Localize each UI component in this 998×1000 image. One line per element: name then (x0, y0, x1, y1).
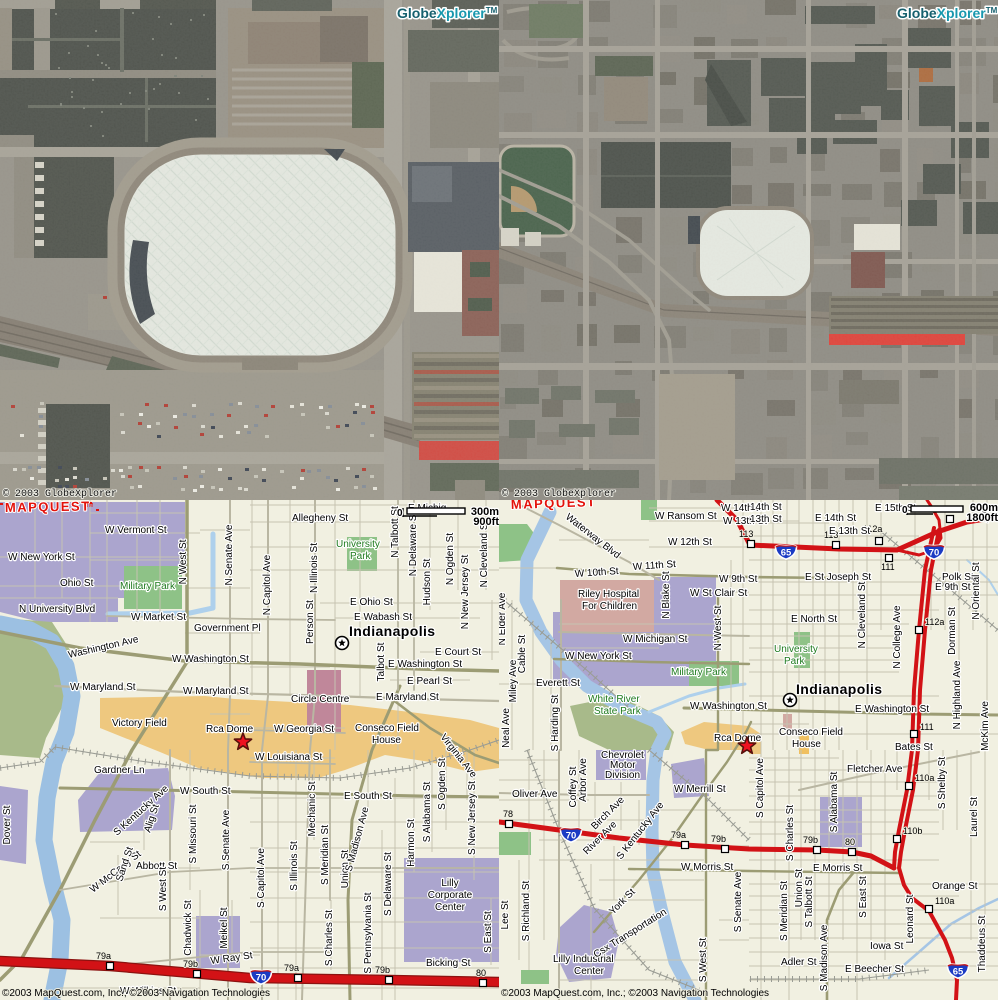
svg-text:110b: 110b (903, 826, 922, 836)
svg-text:S Alabama St: S Alabama St (422, 781, 433, 842)
svg-text:80: 80 (476, 968, 486, 978)
svg-text:13th St: 13th St (750, 514, 782, 525)
svg-text:79b: 79b (375, 965, 390, 975)
svg-text:S Meridian St: S Meridian St (779, 881, 790, 941)
svg-text:GlobeXplorerTM: GlobeXplorerTM (897, 5, 998, 21)
svg-text:Orange St: Orange St (932, 881, 978, 892)
svg-text:S Illinois St: S Illinois St (289, 841, 300, 891)
svg-text:W Louisiana St: W Louisiana St (255, 752, 322, 763)
svg-text:S Charles St: S Charles St (785, 805, 796, 861)
svg-text:Coffey St: Coffey St (568, 766, 579, 807)
svg-text:N West St: N West St (178, 539, 189, 584)
svg-text:Lee St: Lee St (500, 900, 511, 929)
svg-text:Mechanic St: Mechanic St (307, 781, 318, 836)
svg-text:79a: 79a (284, 963, 299, 973)
svg-text:GlobeXplorerTM: GlobeXplorerTM (397, 5, 498, 21)
svg-text:E 15th St: E 15th St (875, 503, 916, 514)
svg-text:70: 70 (566, 831, 577, 842)
svg-text:S Capitol Ave: S Capitol Ave (755, 758, 766, 818)
svg-text:S Talbott St: S Talbott St (804, 876, 815, 927)
svg-text:McKim Ave: McKim Ave (980, 701, 991, 751)
svg-text:70: 70 (256, 973, 267, 984)
svg-text:Victory Field: Victory Field (112, 718, 167, 729)
svg-text:S Senate Ave: S Senate Ave (733, 871, 744, 932)
svg-text:79b: 79b (711, 834, 726, 844)
svg-text:Everett St: Everett St (536, 678, 580, 689)
svg-text:Abbott St: Abbott St (136, 861, 177, 872)
svg-text:S Capitol Ave: S Capitol Ave (256, 848, 267, 908)
svg-text:© 2003 GlobeXplorer: © 2003 GlobeXplorer (3, 488, 117, 500)
svg-text:Ohio St: Ohio St (60, 578, 94, 589)
svg-text:S Richland St: S Richland St (521, 880, 532, 941)
svg-text:For Children: For Children (582, 601, 637, 612)
svg-text:900ft: 900ft (473, 516, 499, 528)
svg-text:N New Jersey St: N New Jersey St (460, 555, 471, 630)
svg-text:W Michigan St: W Michigan St (623, 634, 688, 645)
svg-text:79a: 79a (96, 951, 111, 961)
svg-text:Lilly: Lilly (441, 878, 458, 889)
svg-text:S Pennsylvania St: S Pennsylvania St (363, 892, 374, 973)
svg-text:Conseco Field: Conseco Field (779, 727, 843, 738)
svg-text:©2003 MapQuest.com, Inc.; ©200: ©2003 MapQuest.com, Inc.; ©2003 Navigati… (501, 988, 769, 999)
svg-text:S Delaware St: S Delaware St (383, 852, 394, 916)
svg-text:W South St: W South St (180, 786, 231, 797)
svg-text:S Charles St: S Charles St (324, 910, 335, 966)
svg-text:W 12th St: W 12th St (668, 537, 712, 548)
svg-text:W Merrill St: W Merrill St (674, 784, 726, 795)
svg-text:S Harding St: S Harding St (550, 694, 561, 751)
svg-text:E 9th St: E 9th St (935, 582, 971, 593)
svg-text:Government Pl: Government Pl (194, 623, 261, 634)
svg-text:112a: 112a (925, 617, 944, 627)
svg-text:Dorman St: Dorman St (947, 607, 958, 655)
svg-text:79a: 79a (671, 830, 686, 840)
svg-text:Park: Park (350, 551, 372, 562)
svg-text:N University Blvd: N University Blvd (19, 604, 95, 615)
svg-text:Arbor Ave: Arbor Ave (578, 758, 589, 802)
svg-text:Allegheny St: Allegheny St (292, 513, 348, 524)
svg-text:0: 0 (397, 508, 403, 519)
svg-text:Division: Division (605, 770, 640, 781)
svg-text:Meikel St: Meikel St (219, 907, 230, 948)
svg-text:110a: 110a (935, 896, 954, 906)
svg-text:S Alabama St: S Alabama St (829, 771, 840, 832)
svg-text:79b: 79b (803, 835, 818, 845)
svg-text:N Elder Ave: N Elder Ave (499, 592, 508, 645)
svg-text:Chadwick St: Chadwick St (183, 900, 194, 956)
svg-text:Indianapolis: Indianapolis (349, 623, 435, 639)
svg-text:N Cleveland St: N Cleveland St (479, 520, 490, 587)
svg-text:Adler St: Adler St (781, 957, 817, 968)
svg-text:Fletcher Ave: Fletcher Ave (847, 764, 903, 775)
svg-text:TM: TM (86, 503, 93, 509)
svg-text:W St Clair St: W St Clair St (690, 588, 747, 599)
svg-text:N West St: N West St (713, 605, 724, 650)
svg-text:Circle Centre: Circle Centre (291, 694, 350, 705)
svg-text:E Morris St: E Morris St (813, 863, 863, 874)
svg-text:Rca Dome: Rca Dome (206, 724, 254, 735)
svg-text:Person St: Person St (305, 600, 316, 644)
svg-text:N Capitol Ave: N Capitol Ave (262, 554, 273, 615)
svg-text:N Cleveland St: N Cleveland St (857, 581, 868, 648)
svg-text:Park: Park (784, 656, 806, 667)
svg-text:N Senate Ave: N Senate Ave (224, 524, 235, 585)
svg-text:W Maryland St: W Maryland St (183, 686, 249, 697)
svg-text:W Market St: W Market St (131, 612, 186, 623)
svg-text:S Meridian St: S Meridian St (320, 825, 331, 885)
svg-text:E North St: E North St (791, 614, 837, 625)
svg-text:N Highland Ave: N Highland Ave (952, 660, 963, 729)
svg-text:University: University (336, 539, 380, 550)
svg-text:Leonard St: Leonard St (905, 894, 916, 943)
svg-text:White River: White River (588, 694, 640, 705)
svg-text:Gardner Ln: Gardner Ln (94, 765, 145, 776)
svg-text:E Wabash St: E Wabash St (354, 612, 412, 623)
svg-text:Laurel St: Laurel St (969, 797, 980, 837)
svg-text:Indianapolis: Indianapolis (796, 681, 882, 697)
svg-text:65: 65 (953, 967, 964, 978)
svg-text:Center: Center (435, 902, 466, 913)
svg-text:MAPQUEST: MAPQUEST (5, 500, 91, 515)
svg-text:Harmon St: Harmon St (406, 819, 417, 867)
svg-text:Oliver Ave: Oliver Ave (512, 789, 558, 800)
svg-text:80: 80 (845, 837, 855, 847)
svg-text:N College Ave: N College Ave (892, 605, 903, 669)
svg-text:Neal Ave: Neal Ave (501, 708, 512, 748)
svg-text:Iowa St: Iowa St (870, 941, 904, 952)
svg-text:Dover St: Dover St (2, 805, 13, 844)
svg-text:E Washington St: E Washington St (388, 659, 462, 670)
svg-text:W New York St: W New York St (8, 552, 75, 563)
svg-text:14th St: 14th St (750, 502, 782, 513)
svg-text:Military Park: Military Park (671, 667, 727, 678)
svg-text:N Ogden St: N Ogden St (445, 533, 456, 585)
svg-text:S West St: S West St (158, 867, 169, 911)
svg-text:S Shelby St: S Shelby St (937, 757, 948, 809)
svg-text:110a: 110a (915, 773, 934, 783)
svg-text:78: 78 (503, 809, 513, 819)
svg-text:Hudson St: Hudson St (422, 558, 433, 605)
svg-text:W Georgia St: W Georgia St (274, 724, 334, 735)
svg-text:E Ohio St: E Ohio St (350, 597, 393, 608)
svg-text:S New Jersey St: S New Jersey St (467, 781, 478, 855)
svg-text:N Illinois St: N Illinois St (309, 543, 320, 593)
svg-text:W Washington St: W Washington St (172, 654, 249, 665)
svg-text:E Pearl St: E Pearl St (407, 676, 452, 687)
svg-text:E Beecher St: E Beecher St (845, 964, 904, 975)
svg-text:E Maryland St: E Maryland St (376, 692, 439, 703)
svg-text:113: 113 (739, 529, 753, 539)
svg-text:0: 0 (902, 505, 908, 516)
svg-text:Military Park: Military Park (120, 581, 176, 592)
svg-text:S East St: S East St (483, 911, 494, 953)
svg-text:Thaddeus St: Thaddeus St (977, 915, 988, 972)
svg-text:N Delaware St: N Delaware St (408, 512, 419, 577)
svg-text:E Court St: E Court St (435, 647, 481, 658)
svg-text:Corporate: Corporate (428, 890, 473, 901)
svg-text:W Ransom St: W Ransom St (655, 511, 717, 522)
svg-text:1800ft: 1800ft (966, 512, 998, 524)
svg-text:House: House (792, 739, 821, 750)
svg-text:111: 111 (920, 722, 934, 732)
svg-text:W Morris St: W Morris St (681, 862, 733, 873)
svg-text:E 14th St: E 14th St (815, 513, 856, 524)
svg-text:© 2003 GlobeXplorer: © 2003 GlobeXplorer (502, 488, 616, 500)
svg-text:W New York St: W New York St (565, 651, 632, 662)
svg-text:70: 70 (929, 548, 940, 559)
svg-text:©2003 MapQuest.com, Inc.; ©200: ©2003 MapQuest.com, Inc.; ©2003 Navigati… (2, 988, 270, 999)
svg-text:Riley Hospital: Riley Hospital (578, 589, 639, 600)
svg-text:Center: Center (574, 966, 605, 977)
svg-text:House: House (372, 735, 401, 746)
svg-text:65: 65 (781, 548, 792, 559)
svg-text:E Washington St: E Washington St (855, 704, 929, 715)
svg-text:W Maryland St: W Maryland St (70, 682, 136, 693)
svg-text:S Madison Ave: S Madison Ave (819, 924, 830, 991)
svg-text:Talbot St: Talbot St (376, 642, 387, 681)
svg-text:S Missouri St: S Missouri St (188, 804, 199, 863)
svg-text:S West St: S West St (698, 938, 709, 982)
svg-text:W Washington St: W Washington St (690, 701, 767, 712)
svg-text:Bicking St: Bicking St (426, 958, 471, 969)
svg-text:E St Joseph St: E St Joseph St (805, 572, 871, 583)
svg-text:111: 111 (881, 562, 895, 572)
svg-text:Conseco Field: Conseco Field (355, 723, 419, 734)
svg-text:79b: 79b (183, 959, 198, 969)
svg-text:State Park: State Park (594, 706, 642, 717)
svg-text:N Blake St: N Blake St (661, 571, 672, 618)
svg-text:University: University (774, 644, 818, 655)
svg-text:Bates St: Bates St (895, 742, 933, 753)
svg-text:E South St: E South St (344, 791, 392, 802)
svg-text:E 13th St: E 13th St (829, 526, 870, 537)
svg-text:S Senate Ave: S Senate Ave (221, 809, 232, 870)
svg-text:N Oriental St: N Oriental St (971, 562, 982, 619)
svg-text:S Ogden St: S Ogden St (437, 758, 448, 810)
svg-text:W Vermont St: W Vermont St (105, 525, 167, 536)
svg-text:W 9th St: W 9th St (719, 574, 758, 585)
svg-text:Miley Ave: Miley Ave (508, 659, 519, 702)
svg-text:S East St: S East St (858, 876, 869, 918)
